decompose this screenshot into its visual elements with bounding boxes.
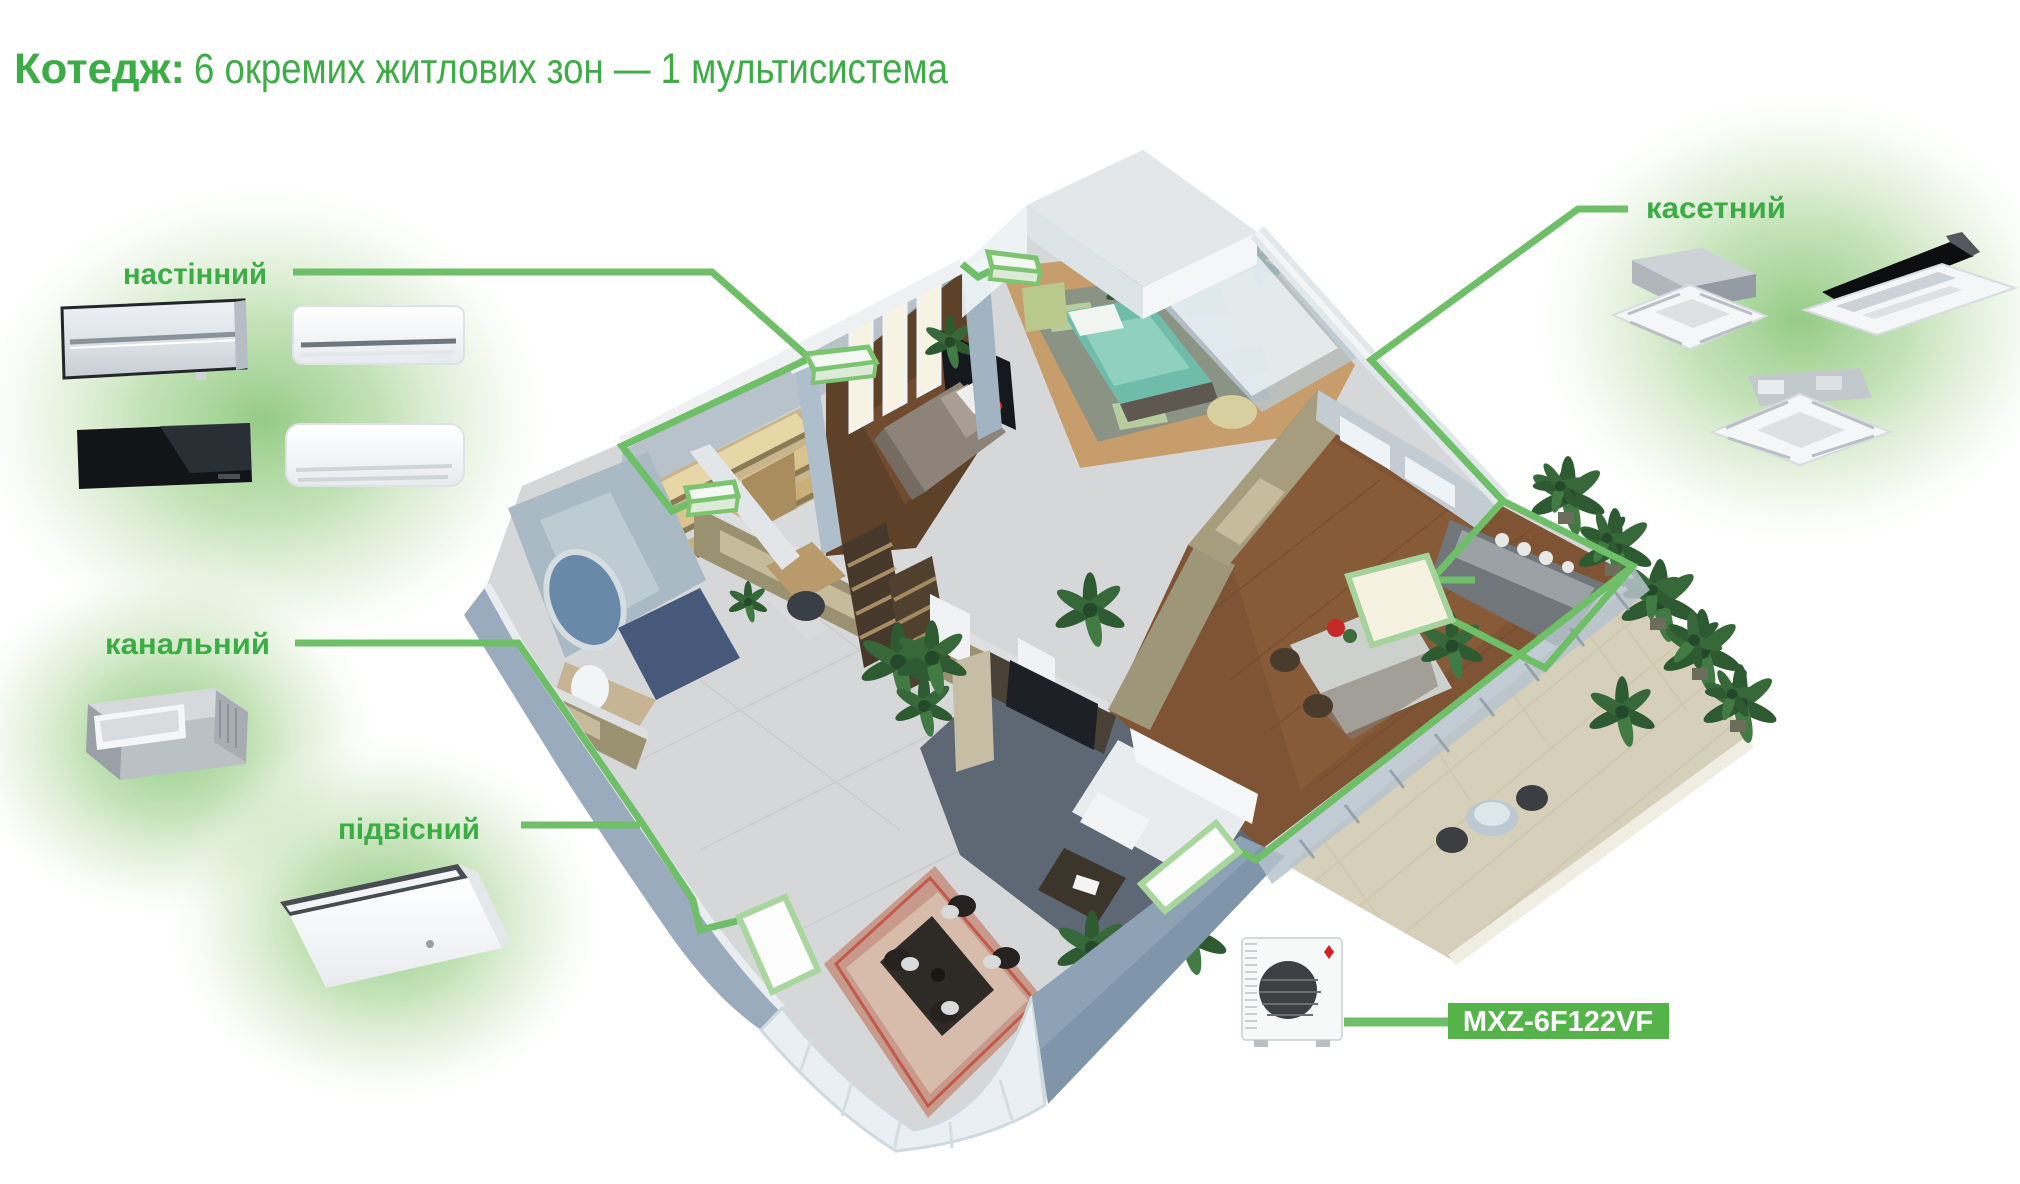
svg-text:6 окремих житлових зон — 1 мул: 6 окремих житлових зон — 1 мультисистема [194,45,948,93]
svg-text:підвісний: підвісний [338,813,480,846]
svg-text:касетний: касетний [1646,192,1786,225]
svg-text:Котедж:: Котедж: [14,45,185,93]
svg-text:канальний: канальний [105,628,270,661]
svg-text:MXZ-6F122VF: MXZ-6F122VF [1463,1006,1653,1038]
svg-text:настінний: настінний [123,258,267,291]
